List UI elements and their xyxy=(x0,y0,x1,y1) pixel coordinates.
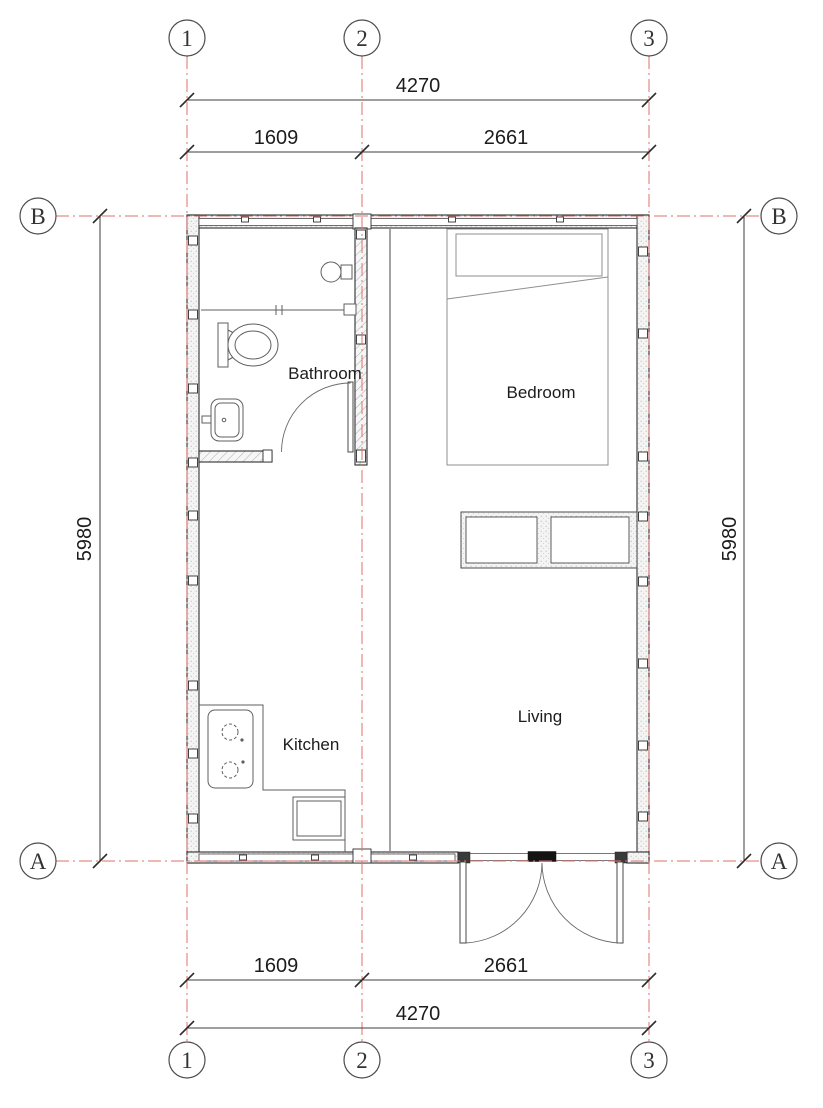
floor-plan-drawing: Bathroom Bedroom Kitchen xyxy=(0,0,823,1108)
kitchen-sink xyxy=(293,797,345,840)
kitchen: Kitchen xyxy=(199,705,345,852)
living: Living xyxy=(458,707,627,943)
door-leaf-right xyxy=(617,862,623,943)
bedroom-label: Bedroom xyxy=(507,383,576,402)
dim-top-right-bay: 2661 xyxy=(484,127,529,149)
grid-label-1-top: 1 xyxy=(181,26,193,51)
dim-bottom-right-bay: 2661 xyxy=(484,955,529,977)
bathroom-label: Bathroom xyxy=(288,364,362,383)
grid-label-b-right: B xyxy=(771,204,786,229)
wardrobe xyxy=(461,512,637,568)
dim-top-total: 4270 xyxy=(396,75,441,97)
right-wall xyxy=(637,215,649,863)
shower-head xyxy=(321,262,352,282)
bathroom-right-wall xyxy=(355,228,367,465)
grid-label-1-bottom: 1 xyxy=(181,1048,193,1073)
grid-label-3-bottom: 3 xyxy=(643,1048,655,1073)
grid-lines xyxy=(56,56,761,1042)
dim-right-height: 5980 xyxy=(719,517,741,562)
grid-label-b-left: B xyxy=(30,204,45,229)
double-entry-door xyxy=(458,852,627,944)
grid-label-a-right: A xyxy=(771,849,788,874)
pillow xyxy=(456,234,602,276)
door-leaf-left xyxy=(460,862,466,943)
grid-label-3-top: 3 xyxy=(643,26,655,51)
cooktop xyxy=(208,710,253,788)
blanket-fold xyxy=(447,277,608,299)
washbasin xyxy=(202,399,243,441)
bedroom: Bedroom xyxy=(447,229,637,568)
living-label: Living xyxy=(518,707,562,726)
bathroom-bottom-wall xyxy=(199,451,272,462)
toilet xyxy=(218,323,278,367)
dim-left-height: 5980 xyxy=(74,517,96,562)
window-top-left xyxy=(199,219,355,226)
floor-plan-page: Bathroom Bedroom Kitchen xyxy=(0,0,823,1108)
dim-bottom-total: 4270 xyxy=(396,1003,441,1025)
window-top-right xyxy=(369,219,637,226)
kitchen-label: Kitchen xyxy=(283,735,340,754)
grid-label-2-bottom: 2 xyxy=(356,1048,368,1073)
grid-label-2-top: 2 xyxy=(356,26,368,51)
window-bottom-left xyxy=(199,854,355,861)
door-center-stop xyxy=(528,852,556,862)
grid-label-a-left: A xyxy=(30,849,47,874)
bathroom: Bathroom xyxy=(201,262,362,452)
bed xyxy=(447,229,608,465)
grid-bubbles: 1 2 3 1 2 3 B B A A xyxy=(20,20,797,1078)
shower-partition xyxy=(201,304,356,315)
bathroom-door xyxy=(282,382,354,452)
dim-bottom-left-bay: 1609 xyxy=(254,955,299,977)
dim-top-left-bay: 1609 xyxy=(254,127,299,149)
